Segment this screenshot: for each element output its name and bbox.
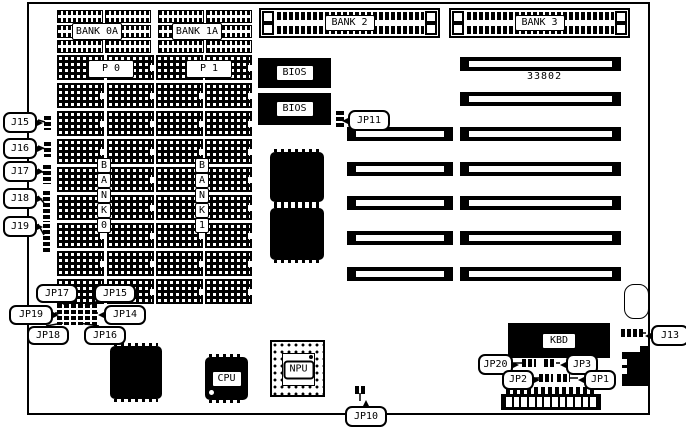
jp2-jumper [539,374,553,382]
simm-clamp [452,23,464,35]
bank-vertical-letter: 1 [195,218,209,233]
callout-j13: J13 [651,325,686,346]
expansion-slot [347,196,453,210]
slot-contact-stripe [469,96,612,102]
dip-socket [158,40,204,53]
jp-cluster-jumper [85,304,90,325]
callout-tail [342,117,350,125]
dram-chip [57,251,104,276]
bios-chip-top: BIOS [258,58,331,88]
slot-contact-stripe [469,235,612,241]
callout-jp1: JP1 [584,370,616,390]
bank1a-label: BANK 1A [172,23,222,40]
dram-chip [156,279,203,304]
expansion-slot [460,92,621,106]
expansion-slot [460,127,621,141]
slot-contact-stripe [356,235,444,241]
expansion-slot [460,57,621,71]
bios-label: BIOS [276,65,314,81]
expansion-slot [347,267,453,281]
bank3-label: BANK 3 [515,15,565,31]
callout-tail [362,400,370,408]
simm-socket-bank2: BANK 2 [259,8,440,38]
npu-dot [309,355,313,359]
callout-tail [35,195,43,203]
expansion-slot [460,267,621,281]
power-pin [506,397,512,407]
callout-j15: J15 [3,112,37,133]
dram-chip [205,167,252,192]
bank-vertical-letter: K [97,203,111,218]
power-connector [501,394,601,410]
j13-jumper [621,329,643,337]
dip-socket [206,10,252,23]
callout-jp14: JP14 [104,305,146,325]
callout-tail [51,311,59,319]
simm-socket-bank3: BANK 3 [449,8,630,38]
bank2-label: BANK 2 [325,15,375,31]
qfp-chip [270,152,324,202]
dip-socket [158,10,204,23]
dip-socket [57,40,103,53]
kbd-chip: KBD [508,323,610,358]
bank-vertical-letter: N [195,188,209,203]
dip-socket [105,40,151,53]
jp1-jumper [557,374,570,382]
dram-chip [205,195,252,220]
bank-vertical-letter: 0 [97,218,111,233]
kbd-label: KBD [542,333,576,349]
dram-chip [156,83,203,108]
bios-chip-bottom: BIOS [258,93,331,125]
dram-chip [107,167,154,192]
callout-tail [35,168,43,176]
expansion-slot [347,231,453,245]
dram-chip [205,251,252,276]
qfp-chip [270,208,324,260]
expansion-slot [460,162,621,176]
power-pin [544,397,550,407]
callout-tail [35,223,43,231]
jp-cluster-jumper [92,304,97,325]
callout-j16: J16 [3,138,37,159]
dram-chip [107,195,154,220]
dip-socket [206,40,252,53]
slot-contact-stripe [469,200,612,206]
slot-contact-stripe [356,166,444,172]
power-pin [560,397,566,407]
slot-contact-stripe [356,131,444,137]
expansion-slot [347,162,453,176]
callout-tail [645,332,653,340]
npu-inner: NPU [282,353,315,386]
simm-clamp [615,11,627,23]
dram-chip [107,251,154,276]
power-pin [514,397,520,407]
jp-cluster-jumper [64,304,69,325]
callout-tail [98,311,106,319]
callout-jp15: JP15 [94,284,136,303]
battery-outline [624,284,649,319]
qfp-chip [110,346,162,399]
motherboard-diagram: BANK 0A BANK 1A BANK 2 BANK 3 P 0 P 1 BA… [0,0,686,434]
callout-tail [511,361,519,369]
simm-clamp [262,23,274,35]
bank-vertical-letter: A [195,173,209,188]
dram-chip [107,223,154,248]
slot-contact-stripe [469,271,612,277]
dram-chip [107,139,154,164]
callout-jp16: JP16 [84,326,126,345]
cpu-chip: CPU [205,357,248,400]
j19-jumper [43,224,50,252]
callout-jp18: JP18 [27,326,69,345]
slot-contact-stripe [469,166,612,172]
power-pin [583,397,589,407]
j18-jumper [43,191,50,222]
dram-chip [107,111,154,136]
jp20-jumper [522,359,536,367]
j15-jumper [44,116,51,130]
power-pin [529,397,535,407]
dram-chip [156,251,203,276]
p0-label: P 0 [88,60,134,78]
simm-clamp [615,23,627,35]
callout-jp10: JP10 [345,406,387,427]
din-notch [622,368,627,374]
callout-jp2: JP2 [502,370,534,390]
jp10-jumper [355,386,366,394]
dram-chip [205,83,252,108]
dram-chip [205,111,252,136]
bank0a-label: BANK 0A [72,23,122,40]
keyboard-din-connector [622,352,650,386]
callout-tail [560,361,568,369]
cpu-pin1-dot [209,390,214,395]
callout-jp19: JP19 [9,305,53,325]
bank-vertical-letter: K [195,203,209,218]
expansion-slot [460,196,621,210]
bank-vertical-letter: A [97,173,111,188]
power-pin [590,397,596,407]
dram-chip [107,83,154,108]
cpu-label: CPU [212,371,242,387]
jp-cluster-jumper [78,304,83,325]
dip-socket [105,10,151,23]
power-pin [537,397,543,407]
simm-clamp [425,23,437,35]
power-pin [521,397,527,407]
bank-vertical-letter: N [97,188,111,203]
callout-jp11: JP11 [348,110,390,131]
callout-tail [35,145,43,153]
power-pin [575,397,581,407]
callout-j18: J18 [3,188,37,209]
dip-socket [57,10,103,23]
j16-jumper [44,142,51,157]
din-notch [622,359,627,365]
slot-contact-stripe [356,271,444,277]
expansion-slot [460,231,621,245]
power-pin [552,397,558,407]
jp3-jumper [544,359,556,367]
npu-socket: NPU [270,340,325,397]
callout-tail [578,376,586,384]
p1-label: P 1 [186,60,232,78]
din-step [640,346,650,352]
slot-contact-stripe [356,200,444,206]
callout-tail [35,119,43,127]
callout-tail [532,376,540,384]
npu-label: NPU [283,360,314,379]
simm-clamp [425,11,437,23]
dram-chip [205,223,252,248]
slot-contact-stripe [469,61,612,67]
dram-chip [156,111,203,136]
callout-j17: J17 [3,161,37,182]
callout-j19: J19 [3,216,37,237]
part-number: 33802 [527,71,562,82]
dram-chip [205,279,252,304]
jp-cluster-jumper [71,304,76,325]
power-pin [567,397,573,407]
j17-jumper [43,165,51,184]
simm-clamp [452,11,464,23]
callout-jp17: JP17 [36,284,78,303]
bank-vertical-letter: B [195,158,209,173]
slot-contact-stripe [469,131,612,137]
simm-clamp [262,11,274,23]
dram-chip [57,111,104,136]
dram-chip [205,139,252,164]
bios-label: BIOS [276,101,314,117]
dram-chip [57,83,104,108]
bank-vertical-letter: B [97,158,111,173]
